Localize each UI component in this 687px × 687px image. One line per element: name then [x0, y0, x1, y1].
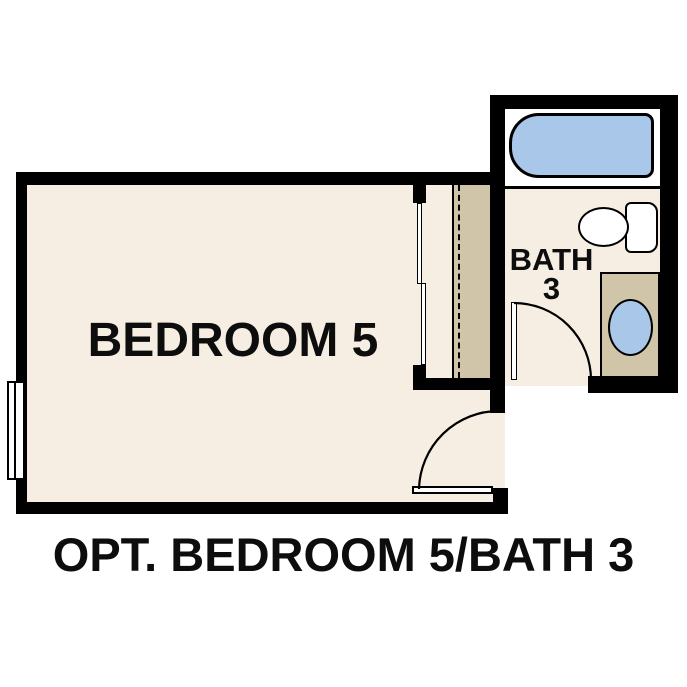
bedroom-room-label-text: BEDROOM 5 — [88, 314, 379, 367]
closet-shelf-edge-line — [452, 185, 454, 378]
bath-doorway-threshold — [505, 380, 588, 386]
plan-caption: OPT. BEDROOM 5/BATH 3 — [0, 530, 687, 580]
window-pane-line — [14, 383, 16, 478]
bedroom-door-leaf — [412, 486, 493, 494]
bath-room-label: BATH 3 — [505, 245, 598, 303]
toilet-bowl — [578, 207, 629, 247]
closet-bypass-door-upper — [417, 203, 422, 284]
bath-room-label-line1: BATH — [505, 245, 598, 274]
floor-plan-canvas: BEDROOM 5 BATH 3 OPT. BEDROOM 5/BATH 3 — [0, 0, 687, 687]
bath-left-wall — [490, 95, 505, 413]
bath-door-leaf — [511, 302, 517, 380]
bedroom-bottom-wall — [16, 502, 508, 514]
bath-room-label-line2: 3 — [505, 274, 598, 303]
toilet-tank — [625, 202, 658, 253]
bedroom-top-wall — [16, 172, 505, 185]
bath-right-wall — [660, 95, 678, 393]
bath-top-wall — [490, 95, 678, 109]
bedroom-room-label: BEDROOM 5 — [38, 316, 428, 366]
sink-basin — [608, 299, 653, 356]
bathtub-fixture — [509, 113, 654, 178]
bath-bottom-wall — [588, 376, 678, 393]
closet-rod-dashed-line — [458, 185, 460, 378]
closet-opening-top-jamb — [413, 185, 426, 203]
bedroom-door-jamb — [493, 488, 508, 514]
window — [7, 381, 25, 480]
